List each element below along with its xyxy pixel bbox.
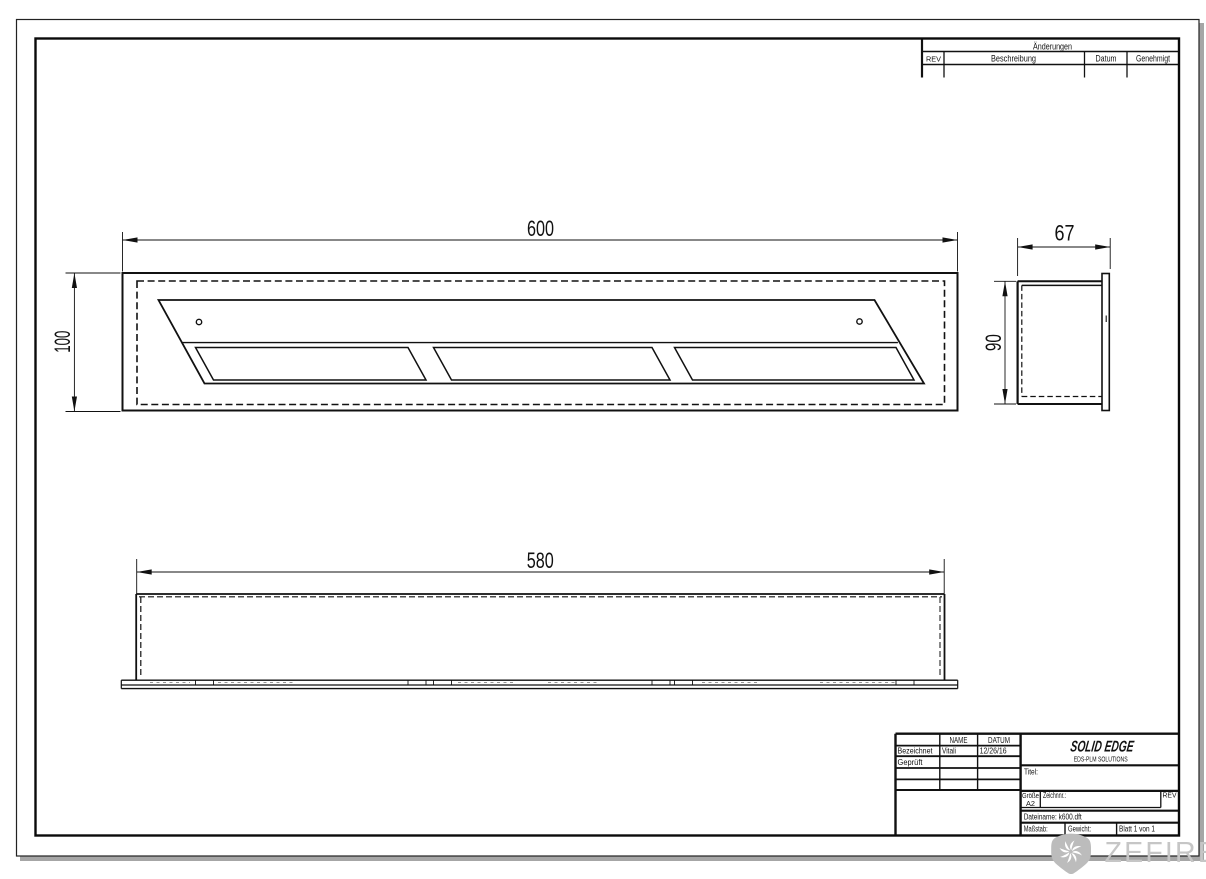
svg-text:Vitali: Vitali (942, 747, 956, 756)
svg-text:100: 100 (50, 331, 75, 353)
svg-text:Dateiname: k600.dft: Dateiname: k600.dft (1024, 813, 1083, 822)
svg-text:Blatt 1 von 1: Blatt 1 von 1 (1119, 825, 1155, 834)
svg-text:Titel:: Titel: (1024, 767, 1038, 776)
svg-text:90: 90 (981, 334, 1006, 351)
svg-text:Gewicht:: Gewicht: (1068, 825, 1091, 834)
svg-text:Zeichnnr.:: Zeichnnr.: (1043, 791, 1066, 800)
svg-text:A2: A2 (1026, 799, 1035, 808)
svg-text:Beschreibung: Beschreibung (991, 54, 1036, 64)
svg-text:600: 600 (527, 216, 554, 241)
svg-text:EDS-PLM SOLUTIONS: EDS-PLM SOLUTIONS (1074, 754, 1128, 763)
svg-text:NAME: NAME (950, 736, 968, 745)
svg-text:ZEFIRE: ZEFIRE (1105, 837, 1206, 869)
svg-text:Geprüft: Geprüft (898, 758, 924, 767)
svg-text:REV: REV (1163, 790, 1177, 799)
svg-text:DATUM: DATUM (988, 736, 1010, 745)
svg-text:Maßstab:: Maßstab: (1024, 825, 1048, 834)
svg-text:Datum: Datum (1096, 54, 1117, 64)
svg-text:Genehmigt: Genehmigt (1136, 54, 1170, 64)
svg-text:Änderungen: Änderungen (1033, 41, 1072, 51)
svg-text:67: 67 (1055, 221, 1075, 246)
svg-text:SOLID EDGE: SOLID EDGE (1069, 739, 1135, 756)
svg-text:580: 580 (527, 548, 554, 573)
svg-text:REV: REV (926, 55, 942, 64)
svg-text:12/26/16: 12/26/16 (980, 747, 1007, 756)
svg-text:Bezeichnet: Bezeichnet (898, 747, 934, 756)
